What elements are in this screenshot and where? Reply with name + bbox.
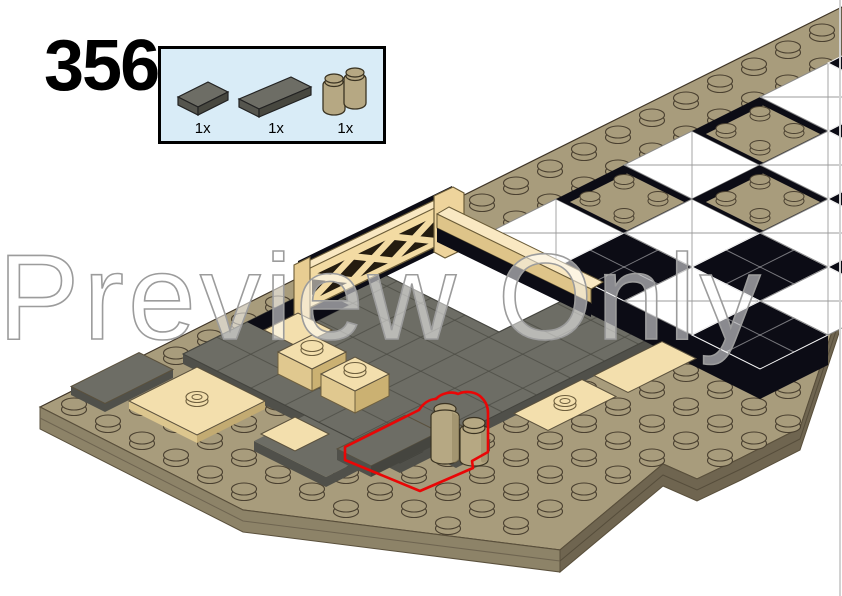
page-edge-line (839, 0, 841, 596)
instruction-page: 356 1x 1x (0, 0, 842, 596)
build-illustration (0, 0, 842, 596)
